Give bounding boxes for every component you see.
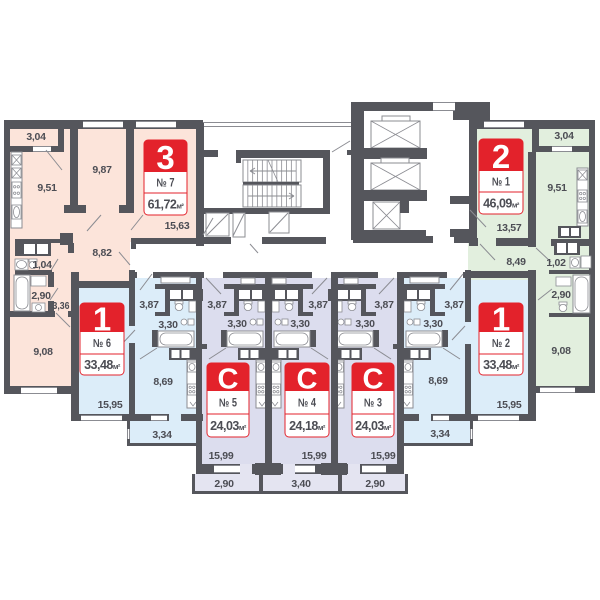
svg-text:№ 2: № 2 [492, 338, 510, 350]
svg-text:15,99: 15,99 [209, 450, 234, 462]
svg-text:9,08: 9,08 [33, 346, 53, 358]
svg-text:9,87: 9,87 [92, 164, 112, 176]
svg-text:3,04: 3,04 [554, 130, 574, 142]
svg-text:3,30: 3,30 [423, 318, 443, 330]
svg-text:1,04: 1,04 [32, 259, 52, 271]
svg-text:№ 5: № 5 [219, 398, 237, 410]
svg-text:3,30: 3,30 [355, 318, 375, 330]
svg-text:2,90: 2,90 [551, 289, 571, 301]
svg-text:8,69: 8,69 [428, 375, 448, 387]
svg-text:3,36: 3,36 [53, 300, 70, 312]
svg-text:3,30: 3,30 [290, 318, 310, 330]
svg-text:3,40: 3,40 [291, 478, 311, 490]
svg-text:3,34: 3,34 [430, 428, 450, 440]
svg-text:№ 6: № 6 [93, 338, 111, 350]
svg-text:15,99: 15,99 [371, 450, 396, 462]
svg-text:15,95: 15,95 [98, 399, 123, 411]
svg-text:9,51: 9,51 [37, 182, 57, 194]
svg-text:3,87: 3,87 [374, 299, 394, 311]
svg-text:9,51: 9,51 [547, 182, 567, 194]
svg-text:13,57: 13,57 [497, 222, 522, 234]
svg-text:3,34: 3,34 [152, 429, 172, 441]
svg-text:15,63: 15,63 [165, 220, 190, 232]
svg-text:2: 2 [492, 138, 510, 175]
svg-text:3,87: 3,87 [207, 299, 227, 311]
svg-text:1: 1 [93, 301, 111, 338]
svg-text:8,49: 8,49 [506, 256, 526, 268]
svg-text:С: С [218, 364, 239, 396]
svg-text:3,87: 3,87 [139, 299, 159, 311]
svg-text:8,82: 8,82 [92, 247, 112, 259]
svg-text:2,90: 2,90 [214, 478, 234, 490]
svg-text:15,99: 15,99 [302, 450, 327, 462]
svg-text:3,04: 3,04 [26, 131, 46, 143]
svg-text:9,08: 9,08 [551, 345, 571, 357]
svg-text:3,30: 3,30 [227, 318, 247, 330]
svg-text:№ 4: № 4 [298, 398, 316, 410]
svg-text:3: 3 [156, 139, 174, 176]
svg-text:1: 1 [492, 301, 510, 338]
svg-text:С: С [363, 364, 384, 396]
svg-text:2,90: 2,90 [365, 478, 385, 490]
svg-text:С: С [297, 364, 318, 396]
svg-text:3,87: 3,87 [444, 299, 464, 311]
svg-text:8,69: 8,69 [153, 376, 173, 388]
svg-text:3,87: 3,87 [308, 299, 328, 311]
svg-text:2,90: 2,90 [31, 290, 51, 302]
svg-text:3,30: 3,30 [158, 319, 178, 331]
svg-text:№ 3: № 3 [364, 398, 382, 410]
svg-text:№ 7: № 7 [157, 178, 175, 190]
svg-text:15,95: 15,95 [497, 399, 522, 411]
svg-text:№ 1: № 1 [492, 177, 510, 189]
svg-text:1,02: 1,02 [546, 257, 566, 269]
